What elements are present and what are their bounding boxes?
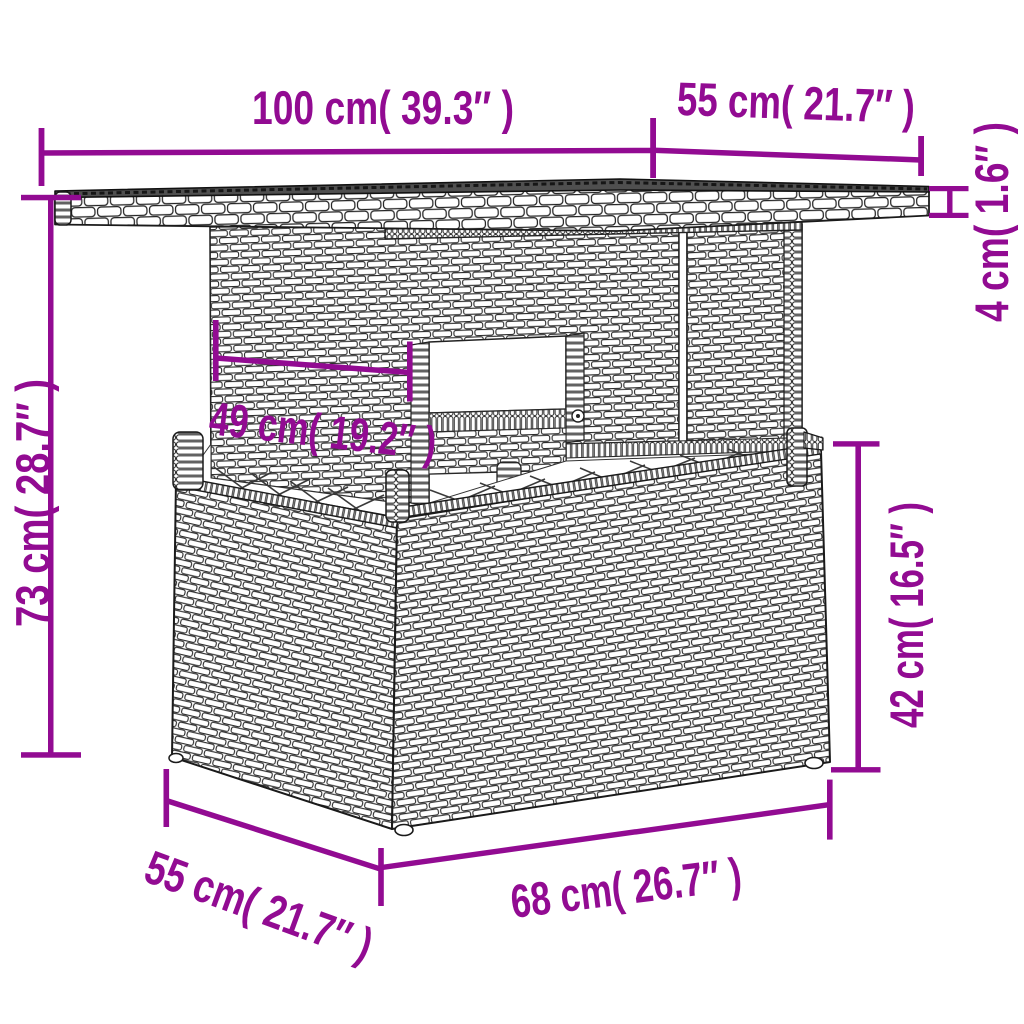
svg-text:73 cm( 28.7″ ): 73 cm( 28.7″ ) [6, 379, 59, 627]
svg-text:42 cm( 16.5″ ): 42 cm( 16.5″ ) [880, 502, 933, 728]
svg-text:100 cm( 39.3″ ): 100 cm( 39.3″ ) [252, 81, 514, 134]
svg-text:4 cm( 1.6″ ): 4 cm( 1.6″ ) [965, 122, 1018, 322]
svg-text:55 cm( 21.7″ ): 55 cm( 21.7″ ) [676, 72, 916, 133]
